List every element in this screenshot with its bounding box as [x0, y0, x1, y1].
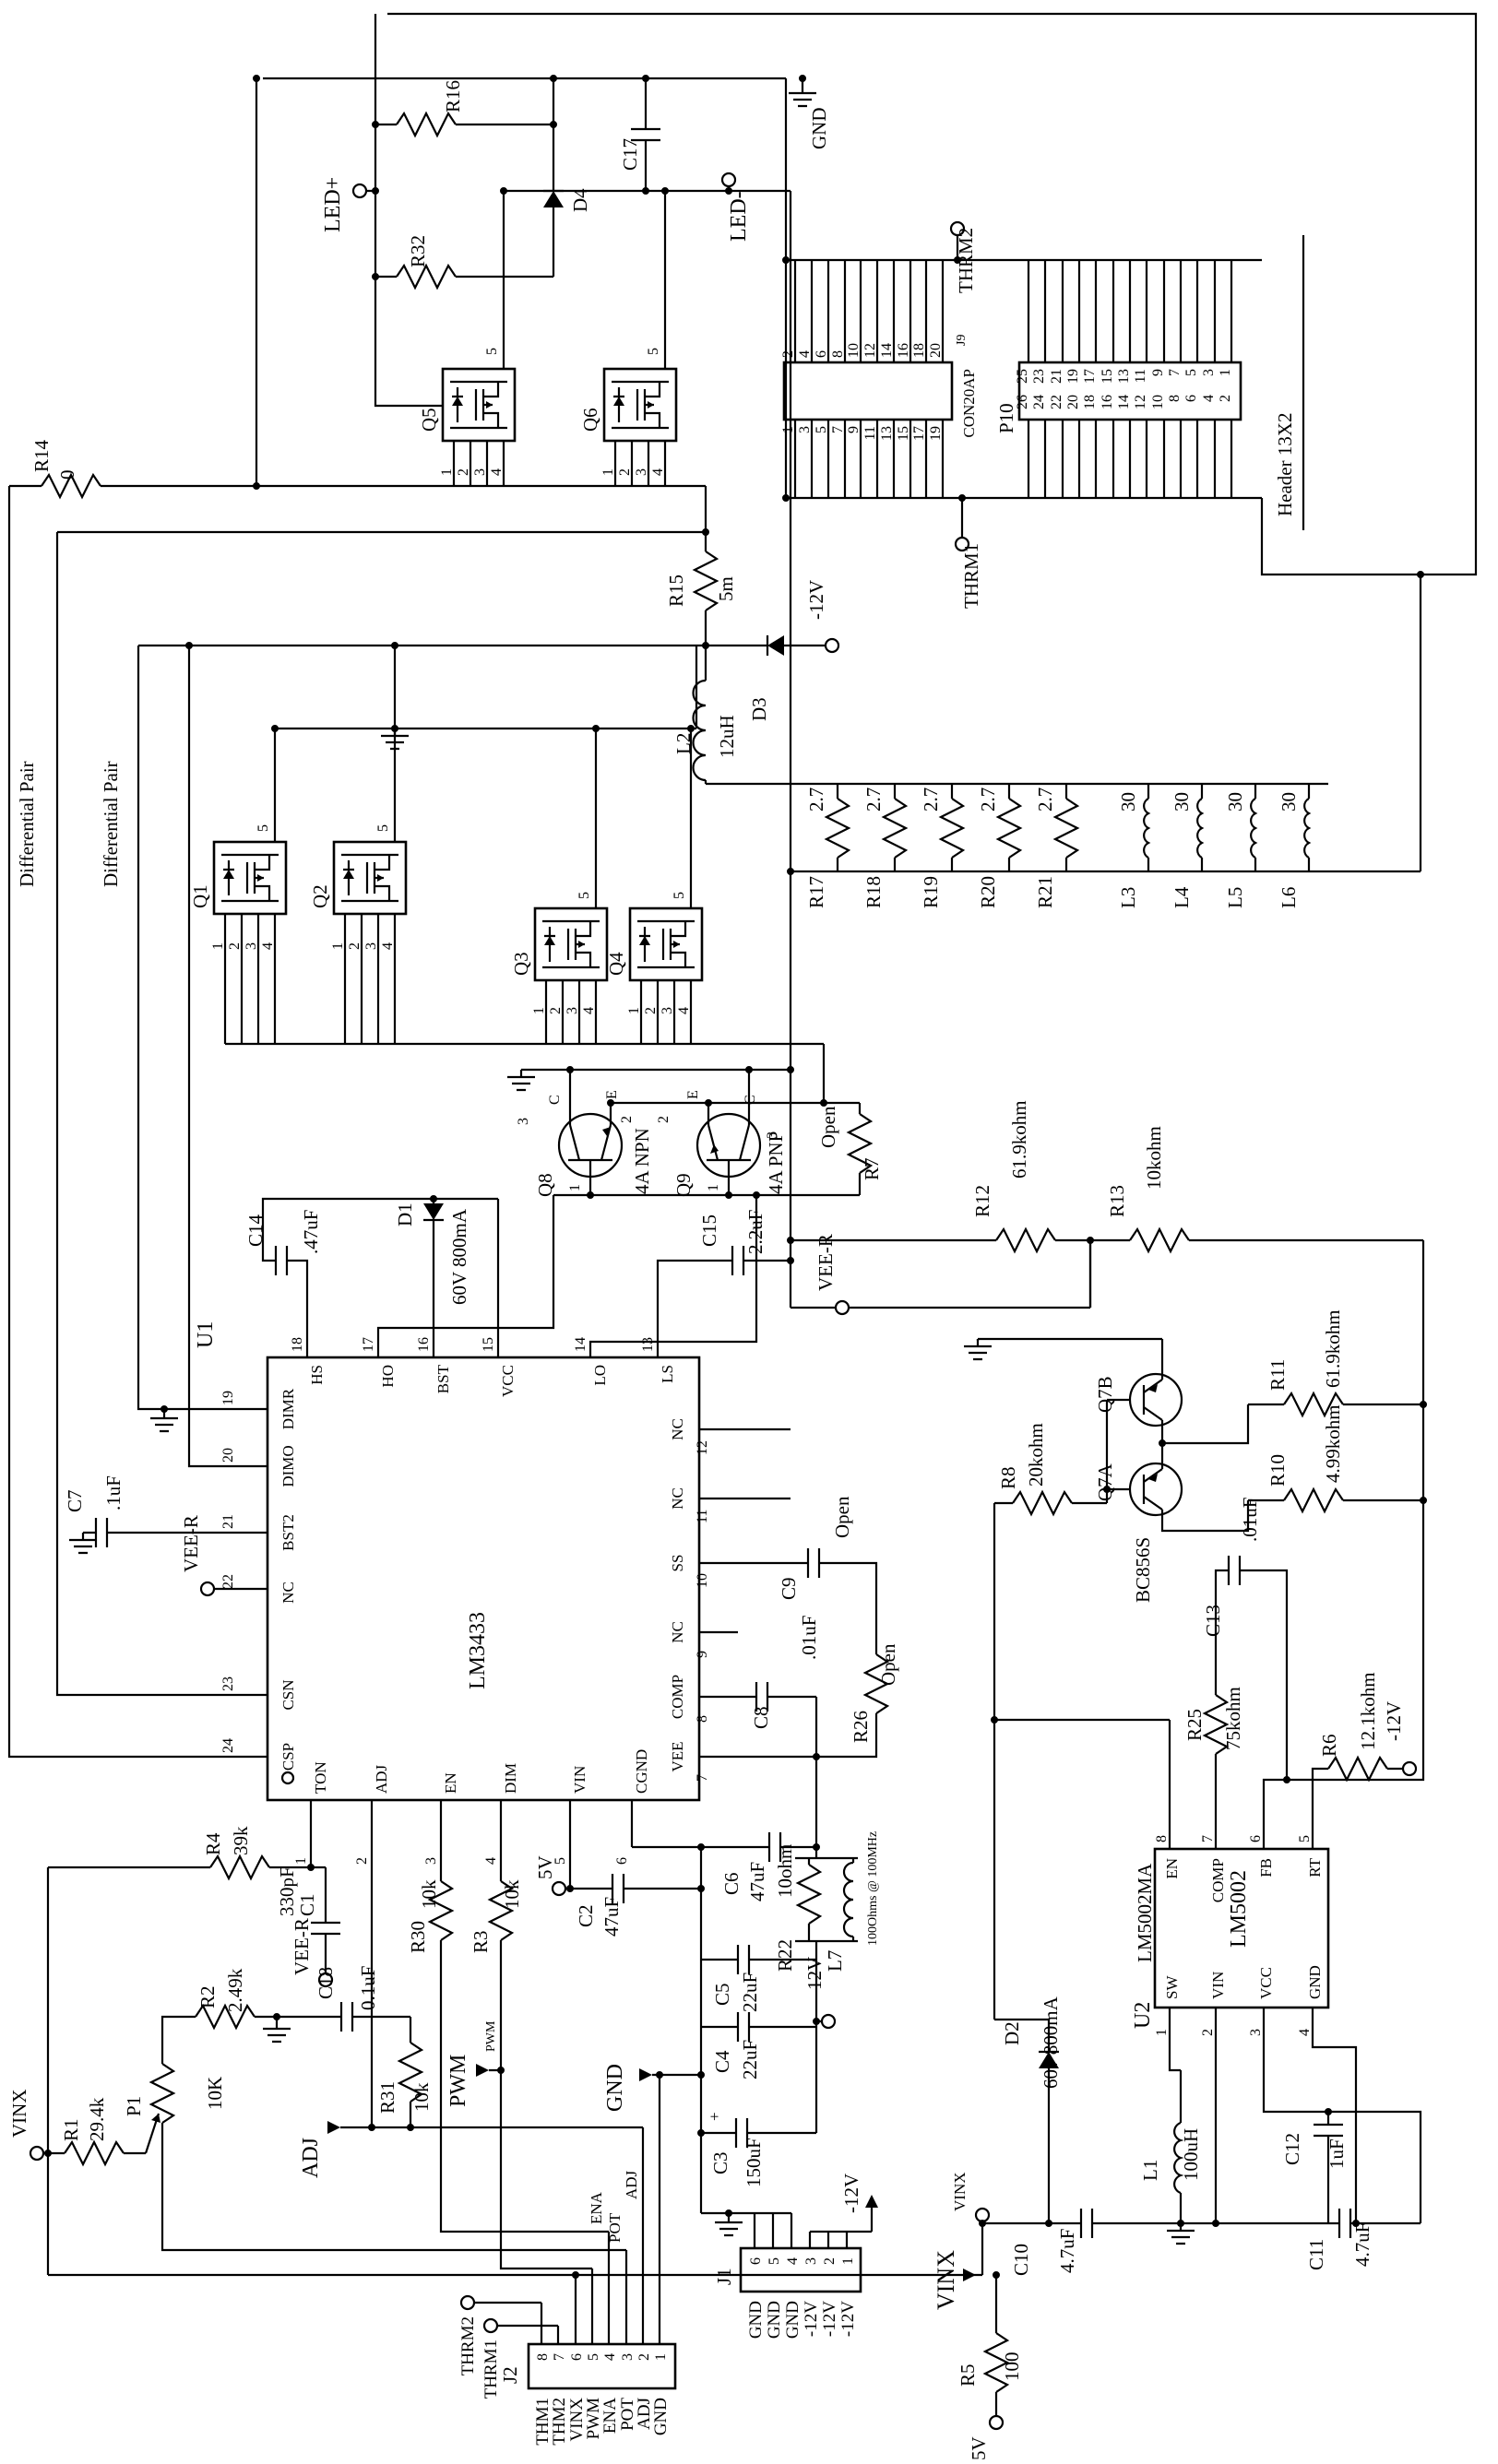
ref-label: R15 — [665, 575, 687, 607]
port-vinx-left — [30, 2147, 43, 2160]
pin-name: RT — [1306, 1857, 1324, 1877]
pin-num: 12 — [695, 1440, 710, 1455]
signal-label: -12V — [820, 2301, 839, 2337]
val-label: 61.9kohm — [1322, 1309, 1344, 1388]
ref-label: Q9 — [672, 1173, 695, 1197]
resistor-R22 — [798, 1865, 820, 1924]
inductor-L5 — [1251, 799, 1255, 858]
signal-label: -12V — [802, 2301, 821, 2337]
port-label: THRM2 — [458, 2316, 478, 2375]
net-label: POT — [606, 2212, 624, 2243]
val-label: BC856S — [1132, 1537, 1154, 1603]
pin-num: 2 — [636, 2353, 652, 2361]
val-label: 4A PNP — [765, 1131, 787, 1194]
pin-num: 3 — [620, 2353, 636, 2361]
pin-num: 3 — [634, 468, 649, 476]
val-label: 0.1uF — [357, 1966, 379, 2010]
ref-label: J1 — [713, 2268, 735, 2285]
port-label: VINX — [8, 2090, 30, 2138]
mosfet-Q2 — [334, 842, 406, 914]
pin-num: 4 — [489, 468, 505, 476]
val-label: 2.2uF — [744, 1210, 767, 1254]
resistor-R4 — [210, 1856, 269, 1878]
connector-J9-body — [784, 362, 952, 420]
ref-label: R10 — [1266, 1454, 1289, 1487]
resistor-R15 — [695, 551, 717, 610]
port-vinx-small — [976, 2209, 989, 2221]
pin-num: 20 — [928, 343, 944, 358]
ref-label: R7 — [861, 1157, 883, 1180]
pin-name: VIN — [1209, 1972, 1227, 1999]
pin-name: COMP — [669, 1675, 686, 1719]
ref-label: L6 — [1278, 887, 1300, 908]
pin-name: EN — [442, 1772, 459, 1794]
pin-num: 17 — [1082, 369, 1098, 384]
ref-label: L7 — [824, 1950, 846, 1972]
pin-num: 19 — [928, 426, 944, 441]
pin-num: 9 — [1150, 369, 1166, 376]
mosfet-Q5 — [443, 369, 515, 441]
pin-num: 11 — [1133, 369, 1148, 383]
port-thrm1-bottom — [484, 2319, 497, 2332]
pin-num: 2 — [227, 942, 243, 950]
ref-label: R8 — [997, 1466, 1019, 1489]
val-label: 22uF — [739, 2040, 761, 2079]
port-label: VEE-R — [814, 1234, 837, 1291]
ref-label: Q6 — [579, 408, 601, 432]
pin-num: 3 — [765, 1131, 780, 1139]
port-minus12v-d3 — [826, 639, 838, 652]
val-label: .01uF — [1239, 1498, 1261, 1542]
pin-num: 8 — [1154, 1835, 1170, 1842]
pin-num: 18 — [911, 343, 927, 358]
port-label: 5V — [968, 2436, 990, 2460]
inductor-L4 — [1197, 799, 1202, 858]
pin-num: 22 — [1049, 395, 1064, 409]
pin-num: 5 — [375, 824, 391, 832]
ref-label: L3 — [1117, 887, 1139, 908]
pin-name: CSP — [279, 1743, 297, 1771]
pin-num: 18 — [1082, 395, 1098, 409]
port-vee-r-pin22 — [201, 1582, 214, 1595]
pin-name: CSN — [279, 1679, 297, 1710]
pin-num: 16 — [416, 1337, 432, 1352]
pin-num: 5 — [484, 348, 500, 355]
ref-label: C14 — [244, 1214, 267, 1247]
ref-label: R25 — [1183, 1709, 1206, 1741]
pin-num: 2 — [548, 1007, 564, 1014]
pin-num: 23 — [220, 1676, 236, 1691]
port-label: THRM2 — [955, 228, 977, 293]
port-label: VEE-R — [291, 1918, 313, 1975]
pin-num: 1 — [600, 468, 616, 476]
pin-name: VCC — [1257, 1967, 1275, 1999]
pin-num: 13 — [640, 1337, 656, 1352]
resistor-R13 — [1130, 1229, 1189, 1251]
pin-num: 4 — [483, 1857, 499, 1865]
pin-name: FB — [1257, 1858, 1275, 1878]
potentiometer-P1 — [151, 2064, 173, 2123]
pin-num: 17 — [361, 1337, 376, 1352]
pin-num: 3 — [660, 1007, 675, 1014]
port-label: -12V — [1383, 1701, 1405, 1741]
mosfet-Q6 — [604, 369, 676, 441]
capacitor-C11 — [1339, 2209, 1350, 2238]
inductor-L6 — [1304, 799, 1309, 858]
ref-label: J9 — [955, 335, 969, 346]
capacitor-C5 — [738, 1945, 749, 1974]
val-label: 2.7 — [977, 788, 999, 811]
ref-label: Q1 — [189, 884, 211, 908]
val-label: 60V 800mA — [448, 1208, 470, 1305]
pin-num: 1 — [1154, 2029, 1170, 2036]
pin-num: 3 — [363, 942, 379, 950]
pin-num: 6 — [614, 1857, 630, 1865]
pin-num: 5 — [672, 892, 687, 899]
pin-num: 21 — [220, 1514, 236, 1529]
ref-label: R6 — [1318, 1734, 1340, 1757]
ref-label: D3 — [748, 697, 770, 721]
port-pwm-arrow — [476, 2064, 489, 2077]
pin-name: CGND — [633, 1749, 650, 1794]
pin-num: 3 — [1201, 369, 1217, 376]
val-label: 30 — [1171, 792, 1193, 811]
pin-num: 15 — [481, 1337, 496, 1352]
ref-label: C7 — [64, 1489, 86, 1512]
pin-num: 6 — [748, 2257, 764, 2265]
pin-name: DIMO — [279, 1445, 297, 1487]
pin-num: 9 — [846, 426, 862, 433]
part-label: LM3433 — [466, 1612, 490, 1689]
port-minus12v-j1-arrow — [865, 2195, 878, 2208]
val-label: .1uF — [102, 1475, 125, 1510]
port-label: -12V — [805, 580, 827, 620]
val-label: Open — [831, 1496, 853, 1538]
pin-num: 7 — [552, 2353, 567, 2361]
ref-label: R14 — [30, 439, 53, 472]
gnd-icon — [1167, 2223, 1195, 2244]
ic-U1-pin1-mark — [282, 1772, 293, 1783]
port-label: -12V — [803, 1957, 826, 1996]
pin-num: 23 — [1031, 369, 1047, 384]
gnd-icon — [263, 2021, 291, 2042]
pin-name: LO — [591, 1365, 609, 1386]
val-label: 2.7 — [920, 788, 942, 811]
net-label: ADJ — [623, 2170, 640, 2199]
pin-num: 10 — [846, 343, 862, 358]
pin-num: 15 — [1100, 369, 1115, 384]
capacitor-C4 — [738, 2012, 749, 2042]
val-label: 12.1kohm — [1357, 1672, 1379, 1750]
port-label: 5V — [534, 1855, 556, 1879]
ref-label: P1 — [123, 2096, 145, 2116]
pin-num: 9 — [695, 1651, 710, 1658]
pin-num: 10 — [1150, 395, 1166, 409]
val-label: 5m — [715, 576, 737, 601]
variant-label: LM5002MA — [1134, 1863, 1156, 1962]
ic-U1-body — [267, 1357, 699, 1800]
port-minus12v-c4 — [822, 2015, 835, 2028]
val-label: 10k — [501, 1879, 523, 1909]
pin-num: 13 — [879, 426, 895, 441]
ref-label: R11 — [1266, 1359, 1289, 1391]
port-label: PWM — [446, 2055, 470, 2107]
signal-label: GND — [783, 2301, 802, 2339]
ref-label: R31 — [376, 2081, 398, 2114]
ref-label: R20 — [977, 876, 999, 908]
ref-label: R18 — [862, 876, 885, 908]
ref-label: R13 — [1106, 1185, 1128, 1217]
ref-label: R5 — [957, 2363, 979, 2387]
ref-label: L5 — [1224, 887, 1246, 908]
pin-num: 3 — [797, 426, 813, 433]
port-led-plus — [353, 184, 366, 197]
pin-num: 4 — [797, 350, 813, 358]
connector-J1-body — [741, 2248, 861, 2292]
ref-label: Q7A — [1094, 1463, 1116, 1501]
port-label: ADJ — [299, 2138, 323, 2178]
diode-D1 — [423, 1203, 444, 1220]
pin-name: VIN — [571, 1766, 588, 1794]
pin-num: 5 — [814, 426, 829, 433]
port-label: GND — [603, 2064, 627, 2112]
pin-num: 4 — [602, 2353, 618, 2361]
pin-name: COMP — [1209, 1858, 1227, 1902]
ref-label: Q7B — [1094, 1376, 1116, 1413]
pin-num: 2 — [643, 1007, 659, 1014]
gnd-icon — [964, 1339, 992, 1359]
transistor-Q7B — [1130, 1374, 1182, 1426]
mosfet-Q1 — [214, 842, 286, 914]
val-label: 0 — [56, 470, 78, 480]
pin-name: ADJ — [373, 1764, 390, 1794]
ref-label: C15 — [698, 1214, 720, 1247]
inductor-L2 — [694, 681, 707, 780]
connector-name: CON20AP — [960, 369, 978, 438]
pin-name: NC — [669, 1418, 686, 1440]
port-thrm2-bottom — [461, 2296, 474, 2309]
pin-num: 1 — [567, 1184, 583, 1191]
val-label: 30 — [1224, 792, 1246, 811]
ref-label: R26 — [850, 1711, 872, 1743]
pin-name: DIMR — [279, 1388, 297, 1429]
val-label: 4.7uF — [1351, 2222, 1373, 2267]
pin-num: 3 — [423, 1857, 439, 1865]
pin-name: SW — [1163, 1975, 1181, 1999]
val-label: 4A NPN — [631, 1128, 653, 1194]
pin-num: 1 — [780, 426, 796, 433]
resistor-R21 — [1055, 799, 1077, 858]
port-led-minus — [722, 173, 735, 186]
pin-num: 11 — [862, 426, 878, 440]
pin-name: BST — [434, 1364, 452, 1393]
ref-label: Q8 — [534, 1173, 556, 1197]
ref-label: C18 — [315, 1967, 337, 1999]
inductor-L7 — [844, 1863, 853, 1937]
diode-D3 — [767, 635, 784, 656]
pin-num: 22 — [220, 1574, 236, 1589]
polarity-plus: + — [706, 2112, 723, 2121]
ref-label: R12 — [971, 1185, 993, 1217]
ref-label: C6 — [720, 1872, 743, 1895]
port-minus12v-r6 — [1403, 1762, 1416, 1775]
pin-num: 5 — [1183, 369, 1199, 376]
pin-name: NC — [669, 1621, 686, 1643]
ref-label: R16 — [442, 80, 464, 113]
ref-label: U1 — [194, 1321, 218, 1348]
wires-power-stage — [9, 441, 1421, 1757]
val-label: 150uF — [743, 2138, 765, 2187]
pin-num: 3 — [516, 1118, 531, 1125]
capacitor-C10 — [1081, 2209, 1092, 2238]
pin-name: VCC — [499, 1365, 517, 1397]
val-label: 47uF — [746, 1862, 768, 1901]
note-diff-pair-1: Differential Pair — [16, 761, 38, 887]
ref-label: R30 — [407, 1921, 429, 1953]
ref-label: D1 — [394, 1202, 416, 1226]
ref-label: C11 — [1305, 2239, 1327, 2270]
port-5v-bottom — [990, 2416, 1003, 2429]
ref-label: L4 — [1171, 886, 1193, 908]
ref-label: C13 — [1202, 1605, 1224, 1637]
resistor-R20 — [998, 799, 1020, 858]
val-label: 4.99kohm — [1322, 1404, 1344, 1483]
pin-label: C — [547, 1095, 563, 1105]
val-label: 2.7 — [862, 788, 885, 811]
signal-label: GND — [765, 2301, 784, 2339]
ref-label: R4 — [202, 1832, 224, 1855]
port-5v-c2 — [553, 1882, 565, 1895]
pin-num: 2 — [617, 468, 633, 476]
val-label: 30 — [1278, 792, 1300, 811]
pin-num: 15 — [896, 426, 911, 441]
ref-label: C8 — [750, 1706, 772, 1729]
pin-num: 25 — [1015, 369, 1030, 384]
ref-label: C17 — [619, 138, 641, 171]
pin-num: 2 — [1200, 2029, 1216, 2036]
ref-label: C2 — [575, 1904, 597, 1927]
pin-num: 3 — [244, 942, 259, 950]
pin-num: 5 — [577, 892, 592, 899]
diode-D4 — [543, 191, 564, 207]
resistor-R6 — [1328, 1758, 1387, 1780]
ref-label: C1 — [296, 1893, 318, 1916]
ref-label: C10 — [1010, 2244, 1032, 2276]
pin-num: 2 — [1218, 395, 1233, 402]
val-label: .01uF — [798, 1616, 820, 1660]
ref-label: C9 — [778, 1577, 800, 1600]
capacitor-C14 — [276, 1246, 287, 1275]
port-vee-r-main — [836, 1301, 849, 1314]
port-label: GND — [808, 108, 830, 150]
pin-num: 3 — [472, 468, 488, 476]
ref-label: C3 — [709, 2151, 731, 2174]
pin-num: 4 — [650, 468, 666, 476]
net-label: PWM — [484, 2020, 498, 2052]
capacitor-C18 — [341, 2002, 352, 2032]
port-label: VINX — [933, 2250, 959, 2310]
ref-label: C4 — [711, 2050, 733, 2073]
pin-num: 4 — [380, 942, 396, 950]
net-label: ENA — [588, 2191, 605, 2224]
schematic-canvas: LED+ R16 R32 D4 C17 LED- GND Q5 Q6 1 2 3… — [0, 0, 1498, 2464]
pin-num: 2 — [780, 350, 796, 358]
pin-num: 1 — [840, 2257, 856, 2265]
val-label: 10k — [418, 1879, 440, 1909]
pin-num: 20 — [1065, 395, 1081, 409]
pin-num: 16 — [1100, 395, 1115, 409]
ref-label: Q3 — [510, 952, 532, 976]
pin-num: 3 — [1248, 2029, 1264, 2036]
pin-num: 24 — [220, 1738, 236, 1753]
port-label: VEE-R — [180, 1515, 202, 1572]
val-label: 2.49k — [224, 1968, 246, 2012]
ref-label: R1 — [60, 2118, 82, 2141]
pin-num: 19 — [1065, 369, 1081, 384]
pin-num: 24 — [1031, 395, 1047, 409]
pin-name: NC — [279, 1581, 297, 1604]
ref-label: L1 — [1139, 2160, 1161, 2181]
pin-num: 13 — [1116, 369, 1132, 384]
pin-num: 1 — [330, 942, 346, 950]
schematic-page: LED+ R16 R32 D4 C17 LED- GND Q5 Q6 1 2 3… — [0, 0, 1498, 2464]
pin-name: HS — [308, 1365, 326, 1385]
val-label: 20kohm — [1025, 1423, 1047, 1487]
pin-label: E — [685, 1090, 701, 1099]
port-label: THRM1 — [481, 2340, 501, 2399]
resistor-R17 — [826, 799, 849, 858]
wires-connector-stubs — [795, 260, 1231, 498]
pin-num: 1 — [626, 1007, 642, 1014]
val-label: 61.9kohm — [1008, 1100, 1030, 1179]
pin-num: 1 — [706, 1184, 721, 1191]
val-label: .47uF — [300, 1210, 322, 1254]
pin-num: 4 — [785, 2257, 801, 2265]
part-label: LM5002 — [1227, 1870, 1251, 1948]
val-label: 100 — [1001, 2352, 1023, 2382]
pin-num: 7 — [830, 426, 846, 433]
resistor-R10 — [1284, 1489, 1343, 1511]
pin-num: 6 — [814, 350, 829, 358]
pin-name: LS — [659, 1365, 676, 1383]
pin-num: 17 — [911, 426, 927, 441]
ref-label: U2 — [1131, 2002, 1155, 2029]
val-label: 330pF — [276, 1866, 298, 1916]
pin-num: 3 — [803, 2257, 819, 2265]
port-label: -12V — [840, 2174, 862, 2213]
pin-num: 1 — [293, 1857, 309, 1865]
pin-num: 6 — [569, 2353, 585, 2361]
pin-num: 4 — [676, 1007, 692, 1014]
pin-num: 5 — [1297, 1835, 1313, 1842]
pin-num: 12 — [1133, 395, 1148, 409]
val-label: 2.7 — [1034, 788, 1056, 811]
ref-label: Q2 — [309, 884, 331, 908]
pin-num: 8 — [830, 350, 846, 358]
port-vinx-arrow — [963, 2269, 976, 2281]
resistor-R19 — [941, 799, 963, 858]
pin-num: 18 — [290, 1337, 305, 1352]
gnd-icon — [69, 1533, 97, 1553]
pin-num: 1 — [210, 942, 226, 950]
pin-num: 5 — [586, 2353, 601, 2361]
pin-num: 14 — [1116, 395, 1132, 409]
gnd-icon — [789, 86, 816, 106]
port-adj-arrow — [327, 2121, 340, 2134]
pin-num: 4 — [581, 1007, 597, 1014]
val-label: 47uF — [600, 1897, 623, 1937]
val-label: 100uH — [1180, 2128, 1202, 2181]
